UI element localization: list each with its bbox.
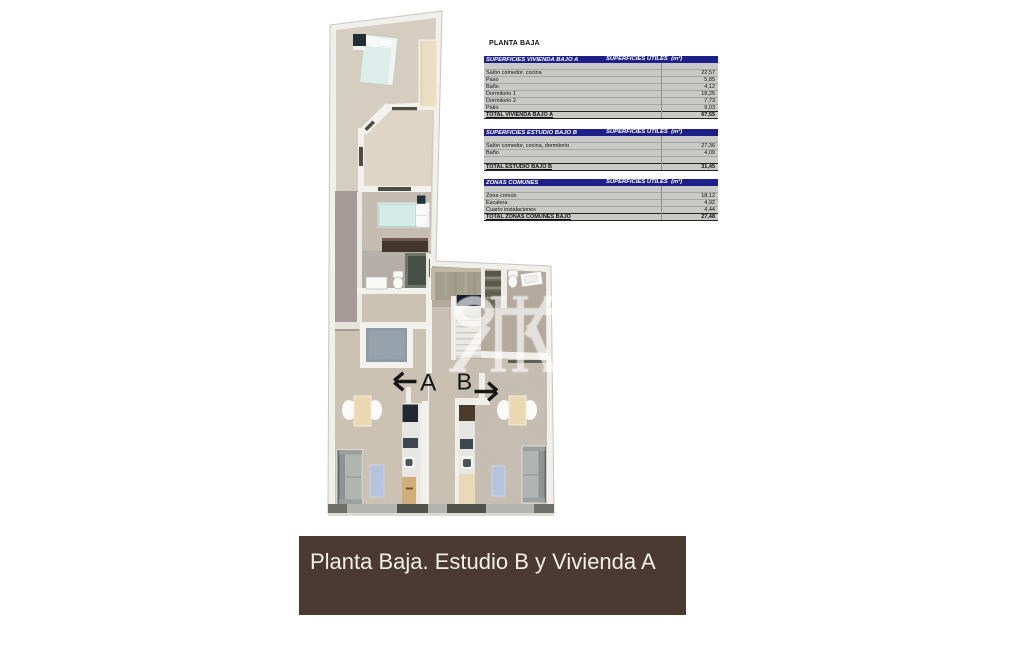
svg-text:B: B	[457, 368, 473, 394]
svg-text:A: A	[420, 370, 437, 397]
